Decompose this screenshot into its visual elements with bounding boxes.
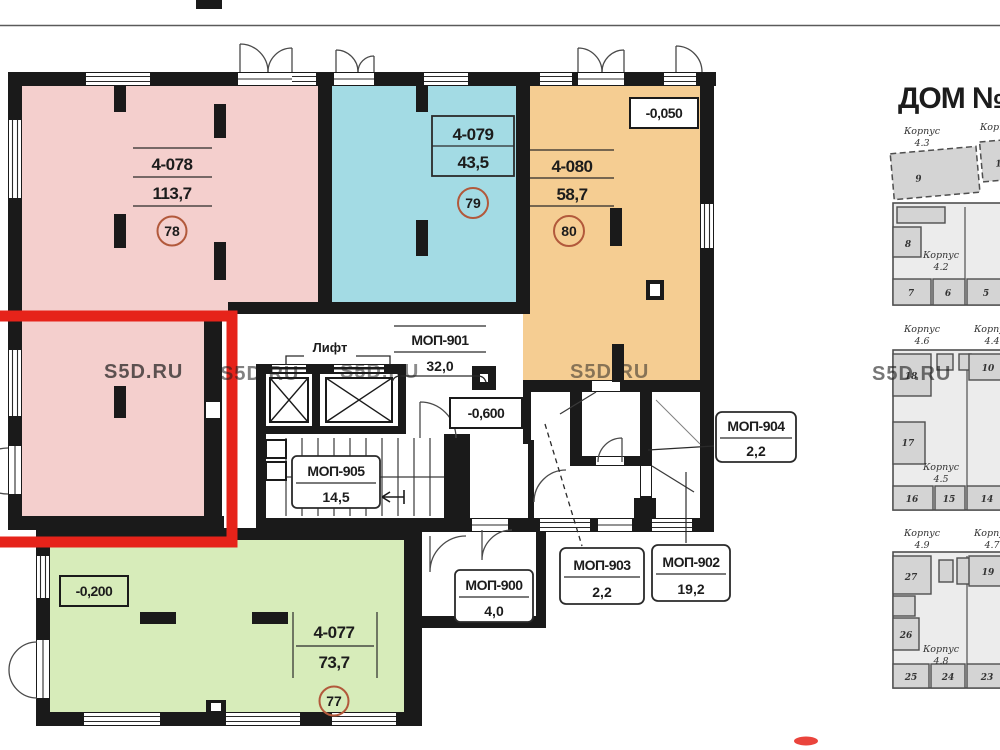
svg-text:5: 5 xyxy=(983,289,989,299)
elevation-mark: -0,050 xyxy=(646,105,683,121)
apartment-number: 79 xyxy=(465,195,481,211)
svg-text:Корпус: Корпус xyxy=(922,250,960,261)
svg-text:Корпус: Корпус xyxy=(973,324,1000,335)
site-building-4-3[interactable]: 9 1 xyxy=(890,139,1000,200)
red-mark-bottom xyxy=(794,737,818,746)
svg-text:16: 16 xyxy=(906,495,919,505)
watermark: S5D.RU xyxy=(570,361,649,383)
svg-text:4.9: 4.9 xyxy=(913,540,929,551)
site-plan-title: ДОМ №4 xyxy=(898,82,1000,115)
svg-text:8: 8 xyxy=(905,240,912,250)
lift-label: Лифт xyxy=(313,340,348,355)
apartment-id: 4-078 xyxy=(152,155,193,174)
mop-905-label: МОП-905 14,5 xyxy=(292,456,380,508)
apartment-area: 58,7 xyxy=(556,185,587,204)
svg-text:МОП-901: МОП-901 xyxy=(411,332,469,348)
svg-text:МОП-903: МОП-903 xyxy=(573,557,631,573)
apartment-number: 78 xyxy=(164,223,180,239)
svg-text:Корпус: Корпус xyxy=(922,462,960,473)
apartment-id: 4-080 xyxy=(552,157,593,176)
svg-text:24: 24 xyxy=(941,673,955,683)
svg-text:МОП-900: МОП-900 xyxy=(465,577,523,593)
svg-text:Корпус: Корпус xyxy=(903,528,941,539)
svg-text:МОП-905: МОП-905 xyxy=(307,463,365,479)
svg-text:Корпус: Корпус xyxy=(903,126,941,137)
apartment-number: 80 xyxy=(561,223,577,239)
svg-text:4,0: 4,0 xyxy=(484,603,504,619)
apartment-area: 113,7 xyxy=(152,184,191,203)
svg-text:1: 1 xyxy=(995,159,1000,170)
svg-text:2,2: 2,2 xyxy=(592,584,612,600)
svg-text:4.7: 4.7 xyxy=(983,540,1000,551)
svg-text:19: 19 xyxy=(982,568,995,578)
watermark: S5D.RU xyxy=(872,363,951,385)
svg-text:14: 14 xyxy=(981,495,994,505)
floorplan-screenshot: Лифт 4-078 113,7 78 4-079 43,5 79 4-080 … xyxy=(0,0,1000,750)
svg-text:Корпус: Корпус xyxy=(922,644,960,655)
svg-text:23: 23 xyxy=(980,673,994,683)
site-building-4-8[interactable]: 27 19 26 25 24 23 Корпус 4.8 xyxy=(893,552,1000,688)
svg-text:МОП-904: МОП-904 xyxy=(727,418,785,434)
apartment-number: 77 xyxy=(326,693,342,709)
stair-direction-arrow xyxy=(382,490,404,504)
elevation-mark: -0,600 xyxy=(468,405,505,421)
svg-text:14,5: 14,5 xyxy=(322,489,349,505)
svg-text:7: 7 xyxy=(908,289,915,299)
site-plan: ДОМ №4 Корпус 4.3 Корпус 9 1 8 7 6 5 Кор… xyxy=(890,82,1000,688)
svg-text:26: 26 xyxy=(899,631,913,641)
mop-904-label: МОП-904 2,2 xyxy=(716,412,796,462)
svg-text:4.6: 4.6 xyxy=(913,336,929,347)
svg-text:Корпус: Корпус xyxy=(903,324,941,335)
apartment-4-078-room-lower[interactable] xyxy=(18,314,222,528)
apartment-area: 43,5 xyxy=(457,153,488,172)
svg-text:МОП-902: МОП-902 xyxy=(662,554,720,570)
svg-text:4.2: 4.2 xyxy=(932,262,948,273)
mop-903-label: МОП-903 2,2 xyxy=(560,548,644,604)
svg-text:32,0: 32,0 xyxy=(426,358,453,374)
apartment-4-077-room[interactable] xyxy=(48,532,412,724)
site-building-4-2[interactable]: 8 7 6 5 Корпус 4.2 xyxy=(893,203,1000,305)
svg-text:17: 17 xyxy=(902,439,915,449)
apartment-area: 73,7 xyxy=(318,653,349,672)
apartment-id: 4-079 xyxy=(453,125,494,144)
svg-text:4.4: 4.4 xyxy=(983,336,999,347)
watermark: S5D.RU xyxy=(104,361,183,383)
mop-902-label: МОП-902 19,2 xyxy=(652,545,730,601)
watermark: S5D.RU xyxy=(220,363,299,385)
svg-text:4.3: 4.3 xyxy=(913,138,929,149)
svg-text:4.8: 4.8 xyxy=(932,656,948,667)
top-cropped-element xyxy=(196,0,222,9)
watermark: S5D.RU xyxy=(340,361,419,383)
elevation-mark: -0,200 xyxy=(76,583,113,599)
svg-text:6: 6 xyxy=(945,289,952,299)
svg-text:25: 25 xyxy=(904,673,918,683)
svg-text:4.5: 4.5 xyxy=(932,474,948,485)
elevator-block: Лифт xyxy=(256,340,406,434)
svg-text:Корпус: Корпус xyxy=(979,122,1000,133)
svg-text:2,2: 2,2 xyxy=(746,443,766,459)
mop-900-label: МОП-900 4,0 xyxy=(455,570,533,622)
svg-text:15: 15 xyxy=(943,495,956,505)
svg-text:Корпус: Корпус xyxy=(973,528,1000,539)
svg-text:10: 10 xyxy=(982,364,995,374)
svg-text:19,2: 19,2 xyxy=(677,581,704,597)
svg-text:27: 27 xyxy=(904,573,918,583)
apartment-id: 4-077 xyxy=(314,623,355,642)
